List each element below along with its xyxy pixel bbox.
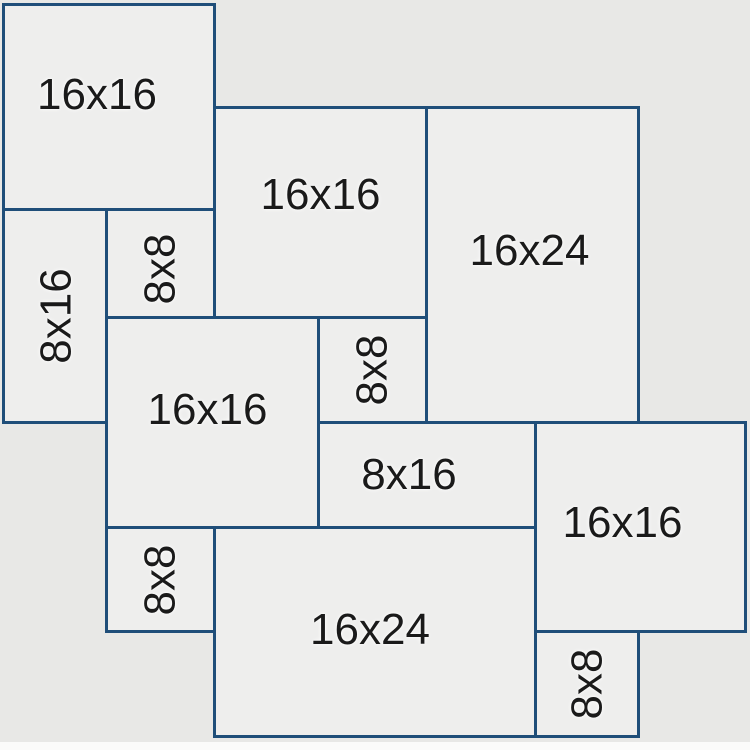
tile-label-16x16-top-left: 16x16 [37,73,157,117]
tile-label-8x8-lower-left: 8x8 [138,544,182,615]
tile-label-8x8-bottom-right: 8x8 [565,649,609,720]
tile-label-16x16-upper-middle: 16x16 [261,173,381,217]
tile-label-16x16-right: 16x16 [563,501,683,545]
tile-8x8-middle: 8x8 [317,316,428,424]
tile-label-16x24-bottom: 16x24 [310,608,430,652]
paver-pattern-diagram: 16x1616x1616x248x88x1616x168x88x1616x168… [0,0,750,750]
tile-8x8-bottom-right: 8x8 [534,630,640,738]
tile-16x16-center: 16x16 [105,316,320,529]
tile-label-8x16-middle: 8x16 [361,453,456,497]
tile-16x24-upper-right: 16x24 [425,106,640,424]
tile-label-8x16-left: 8x16 [35,268,79,363]
tile-16x16-upper-middle: 16x16 [213,106,428,319]
tile-label-8x8-upper: 8x8 [138,233,182,304]
tile-label-16x16-center: 16x16 [148,388,268,432]
tile-16x24-bottom: 16x24 [213,526,537,738]
tile-8x8-lower-left: 8x8 [105,526,216,633]
tile-16x16-top-left: 16x16 [2,3,216,211]
tile-8x16-left: 8x16 [2,208,108,424]
tile-16x16-right: 16x16 [534,421,747,633]
tile-label-16x24-upper-right: 16x24 [470,229,590,273]
tile-8x16-middle: 8x16 [317,421,537,529]
page-margin-bottom [0,742,750,750]
tile-label-8x8-middle: 8x8 [350,335,394,406]
tile-8x8-upper: 8x8 [105,208,216,319]
